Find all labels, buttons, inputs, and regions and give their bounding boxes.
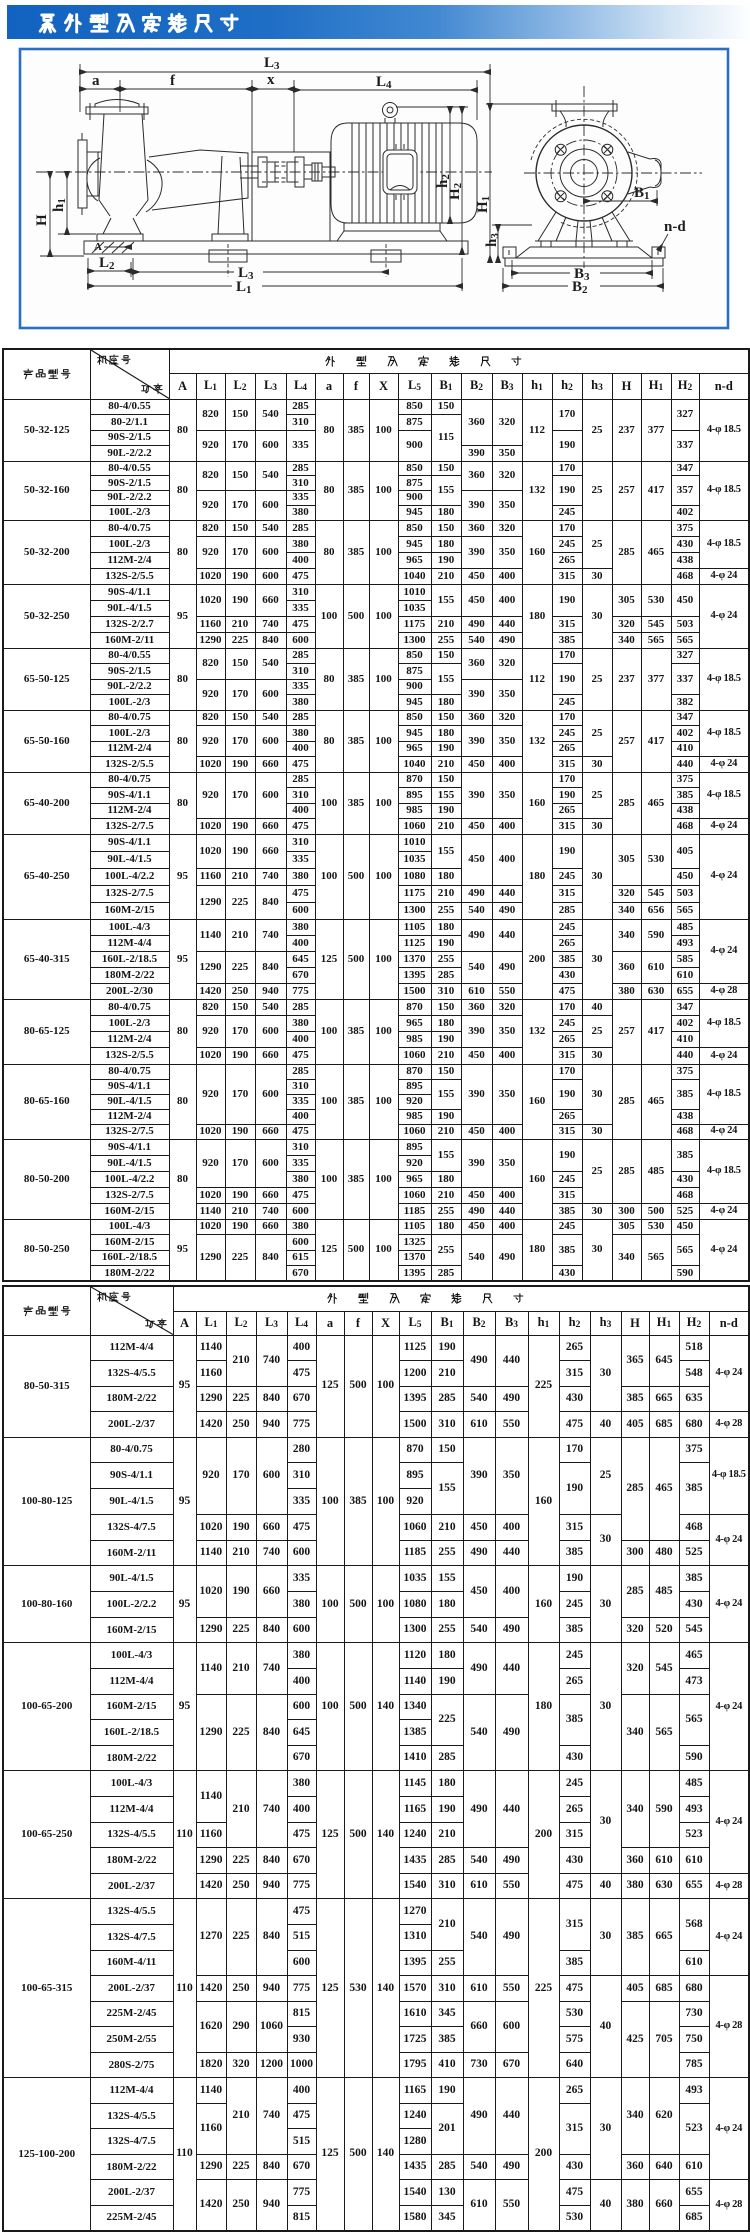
- svg-text:n-d: n-d: [664, 219, 686, 235]
- svg-text:x: x: [267, 72, 275, 88]
- svg-text:H: H: [34, 214, 50, 226]
- svg-text:A: A: [94, 241, 102, 253]
- svg-text:a: a: [92, 73, 100, 89]
